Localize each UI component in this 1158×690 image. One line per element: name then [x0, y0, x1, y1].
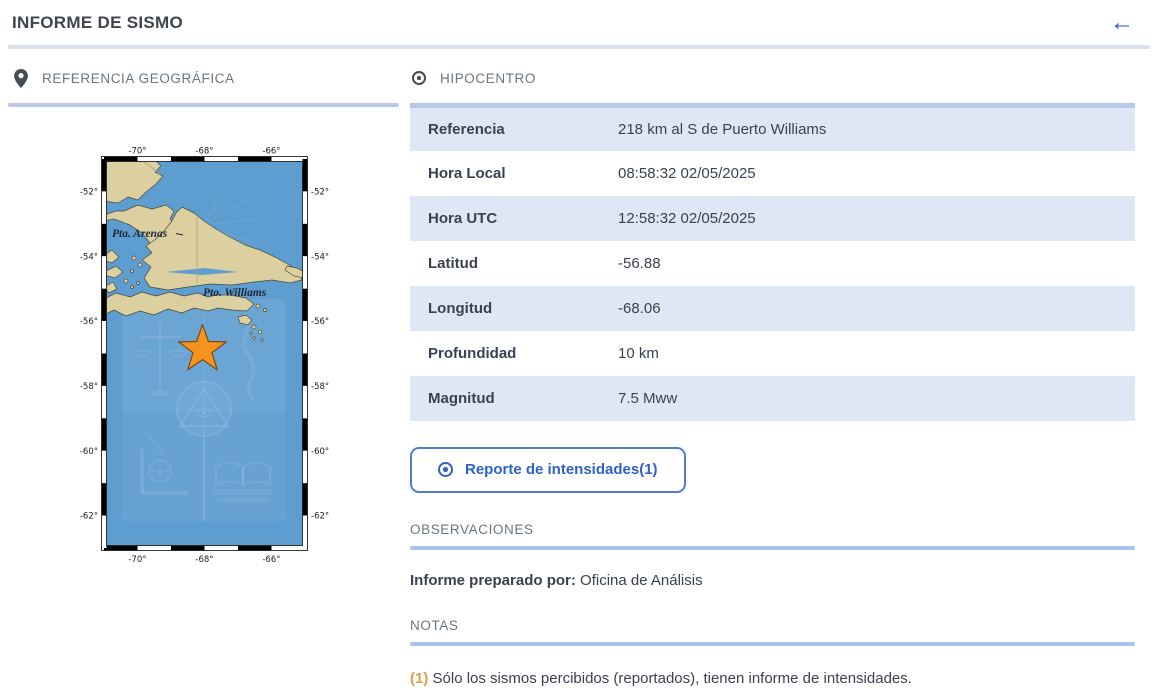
location-pin-icon: [12, 69, 30, 88]
table-row: Profundidad 10 km: [410, 331, 1135, 376]
back-arrow-icon[interactable]: ←: [1110, 13, 1134, 33]
hipocentro-section-title: HIPOCENTRO: [440, 71, 536, 86]
row-label: Referencia: [410, 106, 618, 151]
map-image: Pta. Arenas Pto. Williams -70°-70°-68°-6…: [68, 145, 332, 569]
row-label: Profundidad: [410, 331, 618, 376]
svg-text:-70°: -70°: [128, 147, 146, 157]
row-label: Magnitud: [410, 376, 618, 421]
hipocentro-table-body: Referencia 218 km al S de Puerto William…: [410, 106, 1135, 421]
row-label: Longitud: [410, 286, 618, 331]
epicenter-map: Pta. Arenas Pto. Williams -70°-70°-68°-6…: [68, 145, 410, 574]
row-label: Latitud: [410, 241, 618, 286]
svg-text:-58°: -58°: [80, 382, 98, 392]
table-row: Hora Local 08:58:32 02/05/2025: [410, 151, 1135, 196]
svg-text:-66°: -66°: [262, 147, 280, 157]
row-label: Hora UTC: [410, 196, 618, 241]
row-value: -56.88: [618, 241, 1135, 286]
svg-text:-70°: -70°: [128, 555, 146, 565]
header-divider: [8, 45, 1150, 49]
svg-text:-60°: -60°: [80, 447, 98, 457]
table-row: Magnitud 7.5 Mww: [410, 376, 1135, 421]
observaciones-divider: [410, 546, 1135, 550]
table-row: Hora UTC 12:58:32 02/05/2025: [410, 196, 1135, 241]
hipocentro-table: Referencia 218 km al S de Puerto William…: [410, 103, 1135, 421]
geo-reference-section: REFERENCIA GEOGRÁFICA: [0, 67, 410, 687]
table-row: Referencia 218 km al S de Puerto William…: [410, 106, 1135, 151]
hipocentro-section: HIPOCENTRO Referencia 218 km al S de Pue…: [410, 67, 1158, 687]
notas-divider: [410, 642, 1135, 646]
svg-text:-68°: -68°: [195, 555, 213, 565]
bullseye-icon: [438, 462, 453, 477]
svg-text:-58°: -58°: [311, 382, 329, 392]
prepared-by-label: Informe preparado por:: [410, 572, 576, 589]
geo-section-title: REFERENCIA GEOGRÁFICA: [42, 71, 235, 86]
page-title: INFORME DE SISMO: [12, 13, 183, 33]
svg-text:-60°: -60°: [311, 447, 329, 457]
table-row: Latitud -56.88: [410, 241, 1135, 286]
svg-text:-56°: -56°: [80, 317, 98, 327]
top-bar: INFORME DE SISMO ←: [0, 0, 1158, 33]
svg-text:-54°: -54°: [311, 252, 329, 262]
svg-text:-62°: -62°: [80, 512, 98, 522]
svg-text:-56°: -56°: [311, 317, 329, 327]
row-value: 7.5 Mww: [618, 376, 1135, 421]
map-label-puerto-williams: Pto. Williams: [203, 287, 267, 299]
svg-text:-52°: -52°: [80, 187, 98, 197]
prepared-by-line: Informe preparado por: Oficina de Anális…: [410, 572, 1135, 589]
prepared-by-value: Oficina de Análisis: [580, 572, 703, 589]
row-value: 12:58:32 02/05/2025: [618, 196, 1135, 241]
hipocentro-bullseye-icon: [410, 71, 428, 85]
svg-text:-62°: -62°: [311, 512, 329, 522]
svg-text:-68°: -68°: [195, 147, 213, 157]
notas-title: NOTAS: [410, 618, 1135, 633]
row-value: 218 km al S de Puerto Williams: [618, 106, 1135, 151]
observaciones-title: OBSERVACIONES: [410, 522, 1135, 537]
row-value: 10 km: [618, 331, 1135, 376]
row-label: Hora Local: [410, 151, 618, 196]
intensity-report-label: Reporte de intensidades(1): [465, 461, 658, 478]
map-label-punta-arenas: Pta. Arenas: [112, 228, 168, 240]
row-value: 08:58:32 02/05/2025: [618, 151, 1135, 196]
row-value: -68.06: [618, 286, 1135, 331]
geo-divider: [8, 103, 399, 107]
svg-text:-54°: -54°: [80, 252, 98, 262]
svg-text:-52°: -52°: [311, 187, 329, 197]
table-row: Longitud -68.06: [410, 286, 1135, 331]
svg-text:-66°: -66°: [262, 555, 280, 565]
note-text: Sólo los sismos percibidos (reportados),…: [433, 670, 912, 687]
note-marker: (1): [410, 670, 428, 687]
note-line: (1) Sólo los sismos percibidos (reportad…: [410, 670, 1135, 687]
intensity-report-button[interactable]: Reporte de intensidades(1): [410, 447, 686, 493]
